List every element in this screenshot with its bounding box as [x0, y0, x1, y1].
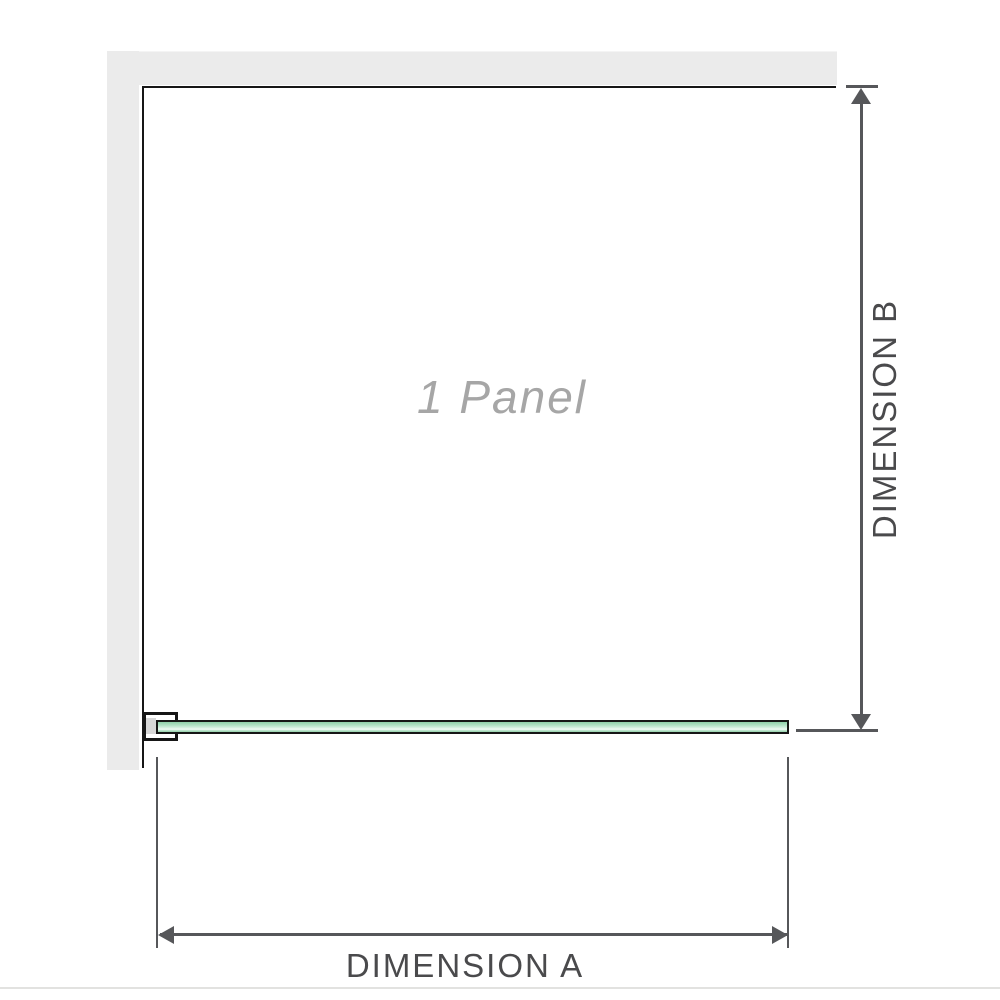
- dimension-b-label: DIMENSION B: [866, 299, 904, 539]
- glass-panel-bar: [156, 720, 789, 734]
- panel-dimension-diagram: 1 Panel DIMENSION B DIMENSION A: [0, 0, 1000, 1000]
- arrow-right-icon: [772, 926, 788, 944]
- bottom-divider: [0, 987, 1000, 989]
- dimension-b-line: [860, 96, 863, 722]
- dimension-a-label: DIMENSION A: [346, 947, 584, 985]
- panel-label: 1 Panel: [417, 370, 587, 424]
- wall-top: [107, 51, 837, 85]
- dimension-a-extension-right: [787, 757, 789, 948]
- wall-left: [107, 51, 139, 770]
- arrow-up-icon: [851, 88, 871, 104]
- panel-outline-left: [142, 86, 144, 768]
- panel-outline-top: [142, 86, 836, 88]
- arrow-left-icon: [158, 926, 174, 944]
- dimension-a-extension-left: [156, 757, 158, 948]
- bracket-inner-shade: [146, 718, 156, 734]
- arrow-down-icon: [851, 714, 871, 730]
- dimension-a-line: [160, 933, 788, 936]
